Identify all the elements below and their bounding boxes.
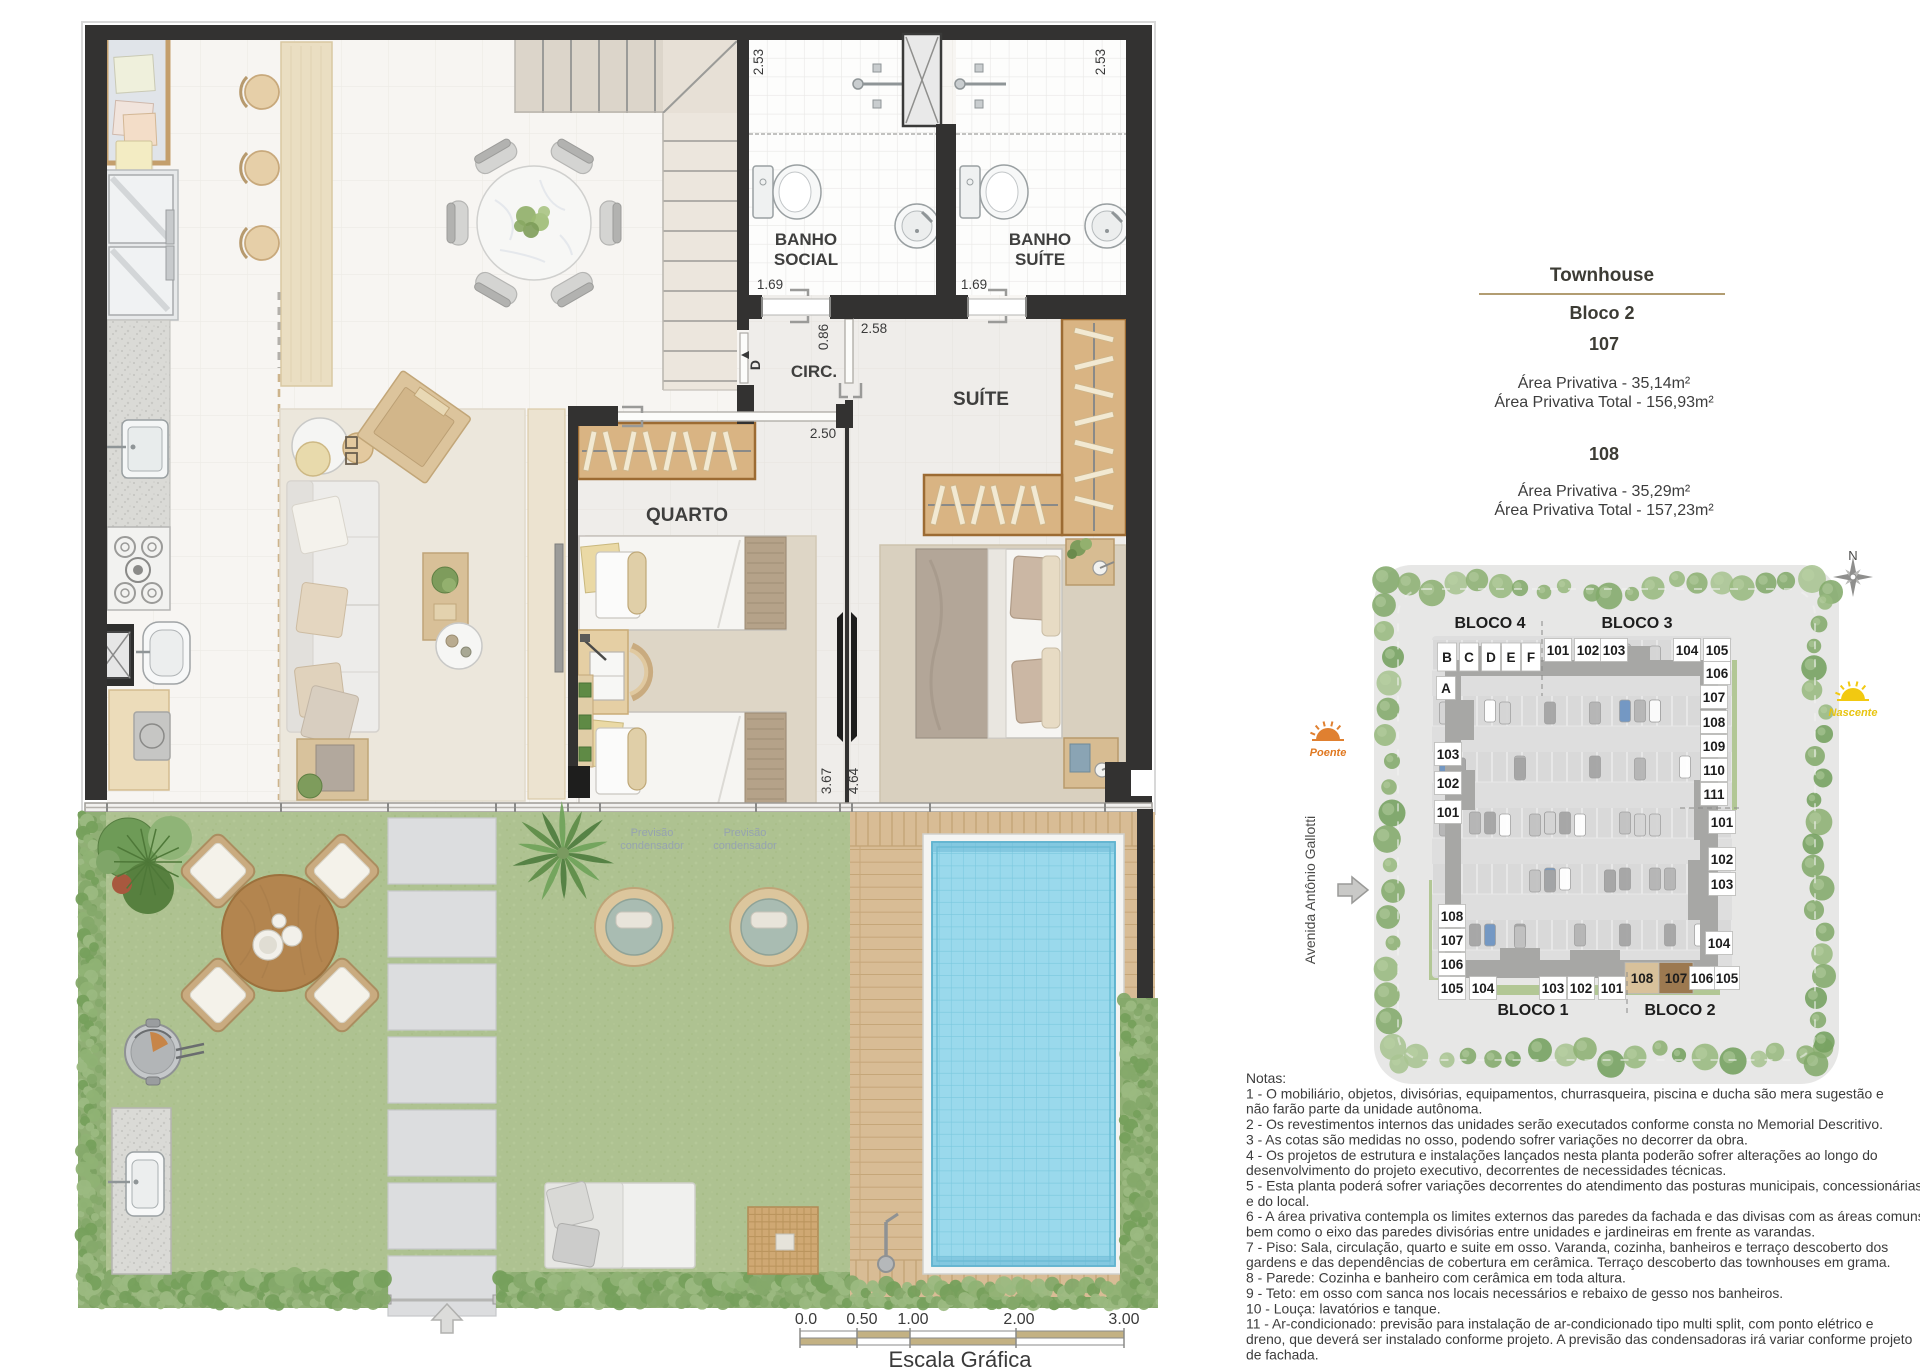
svg-text:108: 108 [1703, 715, 1726, 730]
svg-text:BANHO: BANHO [775, 230, 837, 249]
svg-text:111: 111 [1703, 787, 1725, 802]
svg-text:107: 107 [1665, 971, 1688, 986]
svg-text:Bloco 2: Bloco 2 [1569, 303, 1634, 323]
svg-text:2.00: 2.00 [1003, 1311, 1034, 1328]
svg-text:1.69: 1.69 [757, 277, 783, 292]
svg-text:bem como o eixo das paredes di: bem como o eixo das paredes divisórias e… [1246, 1224, 1815, 1240]
svg-text:não farão parte da unidade aut: não farão parte da unidade autônoma. [1246, 1101, 1482, 1117]
svg-text:Notas:: Notas: [1246, 1070, 1286, 1086]
svg-text:104: 104 [1676, 643, 1699, 658]
svg-text:2.53: 2.53 [751, 49, 766, 75]
svg-text:e do local.: e do local. [1246, 1193, 1309, 1209]
svg-text:107: 107 [1589, 334, 1619, 354]
svg-text:Escala Gráfica: Escala Gráfica [888, 1347, 1032, 1372]
svg-text:11 - Ar-condicionado: previsão: 11 - Ar-condicionado: previsão para inst… [1246, 1316, 1874, 1332]
svg-text:CIRC.: CIRC. [791, 362, 837, 381]
svg-text:2 - Os revestimentos internos: 2 - Os revestimentos internos das unidad… [1246, 1116, 1883, 1132]
svg-text:QUARTO: QUARTO [646, 505, 728, 526]
svg-text:101: 101 [1437, 805, 1460, 820]
svg-text:0.86: 0.86 [816, 324, 831, 350]
svg-text:3.67: 3.67 [819, 768, 834, 794]
svg-text:BLOCO 1: BLOCO 1 [1497, 1002, 1568, 1019]
svg-text:102: 102 [1437, 776, 1460, 791]
svg-text:Previsão: Previsão [631, 827, 674, 839]
svg-text:A: A [1441, 681, 1451, 696]
svg-text:6 - A área privativa contempla: 6 - A área privativa contempla os limite… [1246, 1208, 1920, 1224]
svg-text:Previsão: Previsão [724, 827, 767, 839]
svg-text:Área Privativa - 35,29m²: Área Privativa - 35,29m² [1518, 481, 1691, 500]
svg-text:101: 101 [1601, 981, 1624, 996]
svg-text:Área Privativa Total - 157,23m: Área Privativa Total - 157,23m² [1494, 500, 1714, 519]
svg-text:10 - Louça: lavatórios e tanqu: 10 - Louça: lavatórios e tanque. [1246, 1300, 1441, 1316]
svg-text:102: 102 [1570, 981, 1593, 996]
svg-text:105: 105 [1706, 643, 1729, 658]
svg-text:condensador: condensador [713, 840, 777, 852]
svg-text:BLOCO 2: BLOCO 2 [1644, 1002, 1715, 1019]
svg-text:condensador: condensador [620, 840, 684, 852]
svg-text:0.0: 0.0 [795, 1311, 817, 1328]
svg-text:103: 103 [1542, 981, 1565, 996]
svg-text:105: 105 [1716, 971, 1739, 986]
svg-text:4.64: 4.64 [846, 767, 861, 794]
svg-text:107: 107 [1703, 690, 1726, 705]
svg-text:109: 109 [1703, 739, 1726, 754]
svg-text:BLOCO 4: BLOCO 4 [1454, 615, 1525, 632]
svg-text:102: 102 [1577, 643, 1600, 658]
svg-text:B: B [1442, 650, 1452, 665]
svg-text:SUÍTE: SUÍTE [1015, 250, 1065, 269]
svg-text:108: 108 [1589, 444, 1619, 464]
svg-text:103: 103 [1711, 877, 1734, 892]
svg-text:Townhouse: Townhouse [1550, 265, 1654, 286]
svg-text:106: 106 [1706, 666, 1729, 681]
svg-text:0.50: 0.50 [846, 1311, 877, 1328]
svg-text:105: 105 [1441, 981, 1464, 996]
svg-text:SUÍTE: SUÍTE [953, 388, 1009, 410]
svg-text:101: 101 [1547, 643, 1570, 658]
svg-text:108: 108 [1441, 909, 1464, 924]
svg-text:desenvolvimento do projeto exe: desenvolvimento do projeto executivo, de… [1246, 1162, 1726, 1178]
svg-text:2.58: 2.58 [861, 321, 887, 336]
svg-text:9 - Teto: em osso com sanca no: 9 - Teto: em osso com sanca nos locais n… [1246, 1285, 1783, 1301]
svg-text:3.00: 3.00 [1108, 1311, 1139, 1328]
svg-text:108: 108 [1631, 971, 1654, 986]
svg-text:Área Privativa Total - 156,93m: Área Privativa Total - 156,93m² [1494, 392, 1714, 411]
svg-text:1.69: 1.69 [961, 277, 987, 292]
svg-text:Poente: Poente [1310, 747, 1347, 759]
svg-text:104: 104 [1708, 936, 1731, 951]
svg-text:106: 106 [1691, 971, 1714, 986]
svg-text:D: D [1486, 650, 1496, 665]
svg-text:E: E [1506, 650, 1515, 665]
svg-text:SOCIAL: SOCIAL [774, 250, 838, 269]
svg-text:104: 104 [1472, 981, 1495, 996]
svg-text:Avenida Antônio Gallotti: Avenida Antônio Gallotti [1302, 816, 1318, 964]
svg-text:dreno, que deverá ser instalad: dreno, que deverá ser instalado conforme… [1246, 1331, 1913, 1347]
svg-text:C: C [1464, 650, 1474, 665]
svg-text:8 - Parede: Cozinha e banheiro: 8 - Parede: Cozinha e banheiro com cerâm… [1246, 1270, 1626, 1286]
svg-text:7 - Piso: Sala, circulação, qu: 7 - Piso: Sala, circulação, quarto e sui… [1246, 1239, 1888, 1255]
svg-text:103: 103 [1437, 747, 1460, 762]
svg-text:110: 110 [1703, 763, 1725, 778]
svg-text:3 - As cotas são medidas no os: 3 - As cotas são medidas no osso, podend… [1246, 1131, 1748, 1147]
svg-text:2.53: 2.53 [1093, 49, 1108, 75]
svg-text:103: 103 [1603, 643, 1626, 658]
svg-text:1.00: 1.00 [897, 1311, 928, 1328]
svg-text:4 - Os projetos de estrutura e: 4 - Os projetos de estrutura e instalaçõ… [1246, 1147, 1878, 1163]
svg-text:BANHO: BANHO [1009, 230, 1071, 249]
svg-text:F: F [1527, 650, 1535, 665]
svg-text:Área Privativa - 35,14m²: Área Privativa - 35,14m² [1518, 373, 1691, 392]
svg-text:101: 101 [1711, 815, 1734, 830]
svg-text:5 - Esta planta poderá sofrer: 5 - Esta planta poderá sofrer variações … [1246, 1177, 1920, 1193]
svg-text:107: 107 [1441, 933, 1464, 948]
svg-text:106: 106 [1441, 957, 1464, 972]
svg-text:2.50: 2.50 [810, 426, 836, 441]
svg-text:gardens e das dependências de: gardens e das dependências de cobertura … [1246, 1254, 1890, 1270]
svg-text:de fachada.: de fachada. [1246, 1346, 1319, 1362]
svg-text:1 - O mobiliário, objetos, div: 1 - O mobiliário, objetos, divisórias, e… [1246, 1085, 1884, 1101]
svg-text:102: 102 [1711, 852, 1734, 867]
svg-text:Nascente: Nascente [1829, 707, 1878, 719]
svg-text:D: D [747, 360, 763, 370]
svg-text:BLOCO 3: BLOCO 3 [1601, 615, 1672, 632]
